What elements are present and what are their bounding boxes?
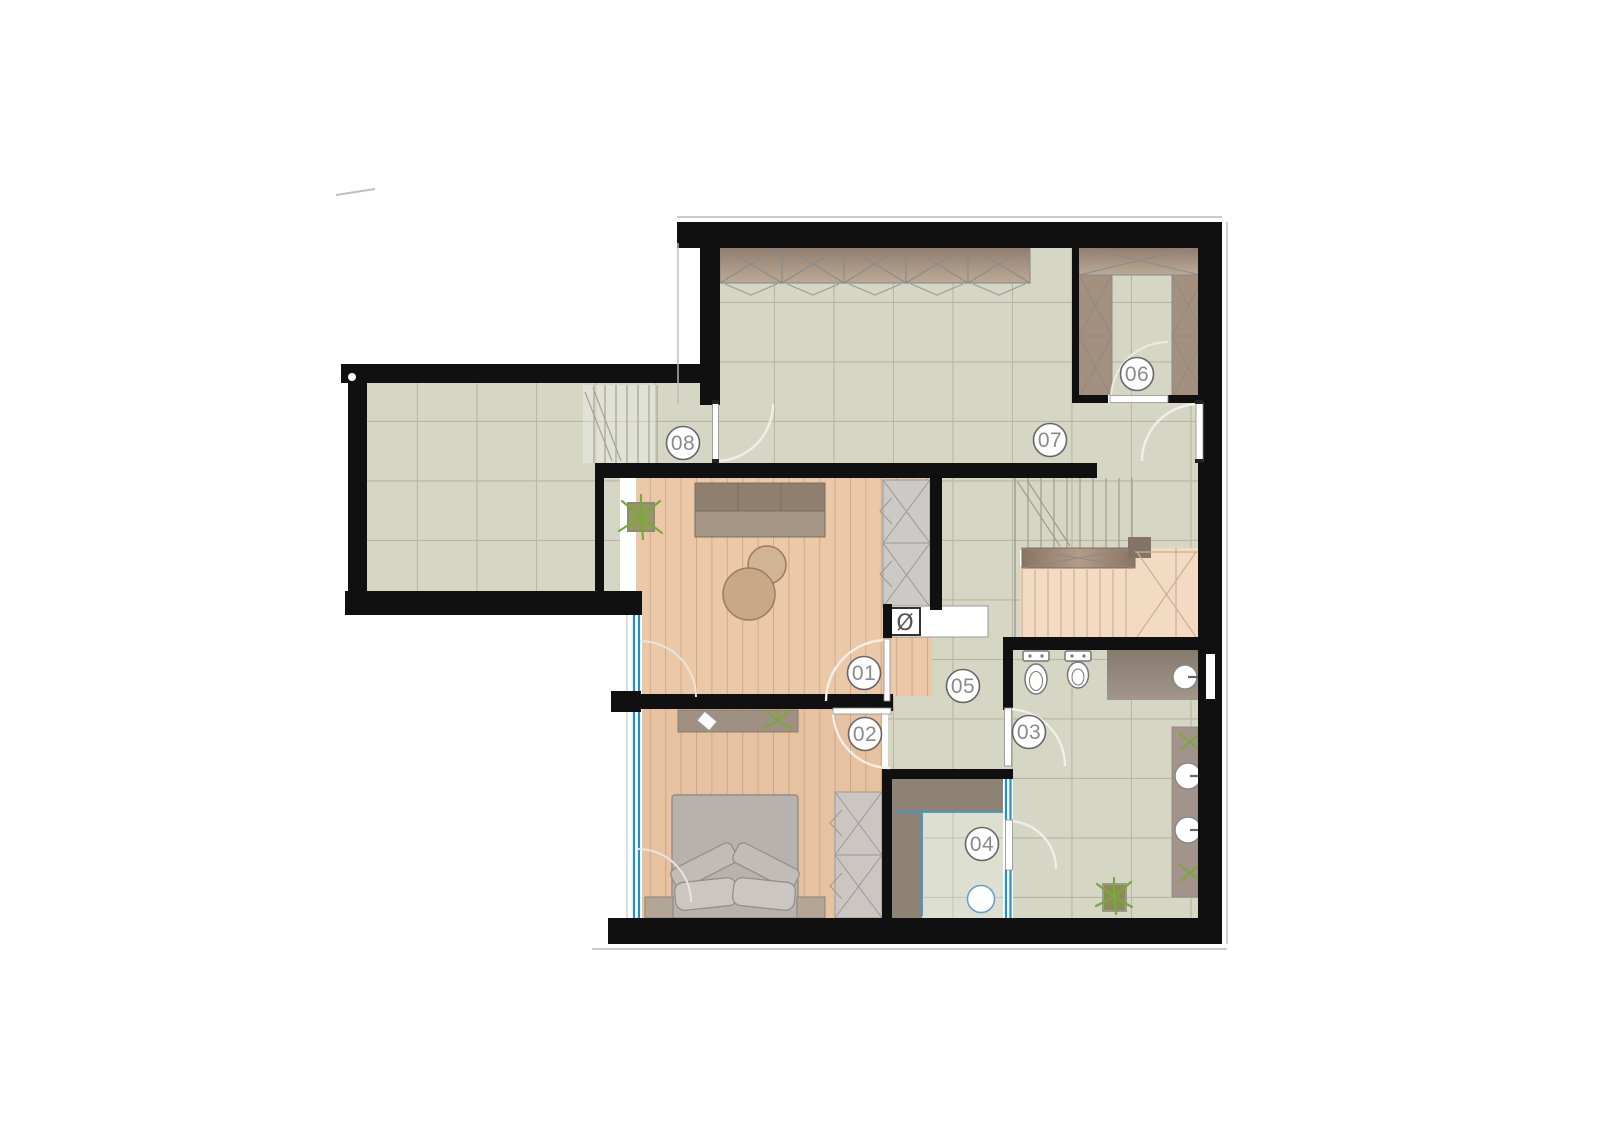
wall-window-stub [611, 691, 641, 712]
wall-room-divider [638, 694, 893, 709]
wall-leftwing-top [341, 364, 702, 383]
room-label-03: 03 [1013, 716, 1046, 749]
wall-dressing-left [595, 463, 604, 593]
svg-text:05: 05 [951, 675, 975, 698]
stair-left-wing [583, 385, 657, 463]
wall-bath-top [1005, 637, 1222, 650]
bedroom-wardrobe [830, 792, 882, 918]
dressing-wardrobe [880, 480, 930, 607]
svg-text:08: 08 [671, 432, 695, 455]
room-label-04: 04 [966, 828, 999, 861]
wall-right [1198, 222, 1222, 944]
room-label-07: 07 [1034, 424, 1067, 457]
svg-text:07: 07 [1038, 429, 1062, 452]
svg-text:02: 02 [853, 723, 877, 746]
room-label-06: 06 [1121, 358, 1154, 391]
wall-hall-bottom [595, 463, 1097, 478]
room-label-05: 05 [947, 670, 980, 703]
room-label-01: 01 [848, 657, 881, 690]
nightstand [797, 897, 825, 918]
svg-text:01: 01 [852, 662, 876, 685]
shower-stool [968, 886, 995, 913]
stair-lower-flight [1020, 566, 1135, 639]
wall-closet06-left [1072, 240, 1079, 398]
bed [669, 795, 802, 918]
wall-hall-shower [882, 769, 1013, 779]
svg-text:03: 03 [1017, 721, 1041, 744]
svg-text:04: 04 [970, 833, 994, 856]
wall-dressing-hall [930, 478, 942, 610]
bathroom-counter [1107, 650, 1207, 700]
dressing-sofa [695, 483, 825, 537]
floor-plan: Ø [0, 0, 1619, 1143]
wall-closet06-bottom-left [1072, 395, 1108, 403]
wall-leftwing-left [348, 375, 367, 614]
svg-text:06: 06 [1125, 363, 1149, 386]
wall-topblock-left [700, 243, 720, 405]
wall-bottom [608, 918, 1222, 944]
wall-point-marker [348, 373, 356, 381]
room-label-08: 08 [667, 427, 700, 460]
stray-mark [336, 189, 375, 195]
floor-plan-drawing: Ø [0, 0, 1619, 1143]
wall-shaft-stub [883, 604, 892, 638]
toilet [1023, 651, 1049, 694]
wall-slit-window [1206, 654, 1215, 699]
wall-bedroom-right [882, 769, 892, 919]
bidet [1065, 651, 1091, 688]
nightstand [645, 897, 673, 918]
wall-leftwing-bottom [345, 591, 642, 615]
shaft-symbol: Ø [896, 611, 913, 636]
pillow [732, 877, 797, 911]
wall-top [677, 222, 1222, 248]
room-label-02: 02 [849, 718, 882, 751]
bedroom-console [678, 708, 798, 732]
technical-shaft: Ø [888, 606, 988, 637]
pillow [674, 877, 739, 911]
